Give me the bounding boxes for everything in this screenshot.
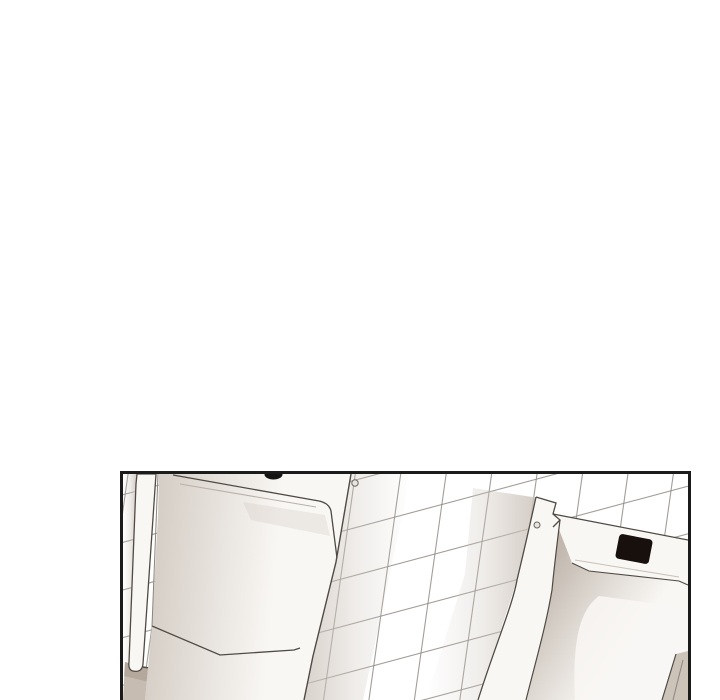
wall-bolt-icon — [352, 480, 358, 486]
pillar-bolt-icon — [534, 522, 540, 528]
comic-panel — [120, 471, 691, 700]
page-background — [0, 0, 720, 700]
panel-artwork — [123, 474, 688, 700]
